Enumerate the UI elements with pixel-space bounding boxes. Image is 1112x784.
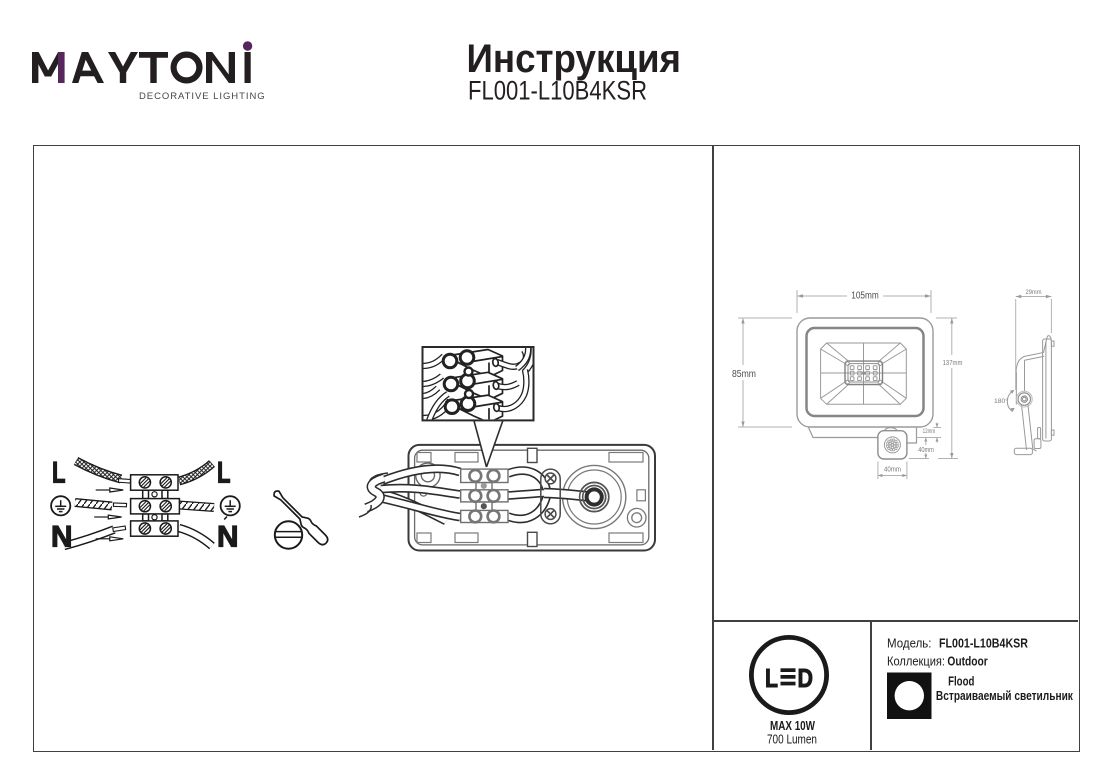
svg-text:Модель:: Модель: [887, 636, 932, 651]
svg-text:12mm: 12mm [923, 428, 936, 435]
svg-text:Коллекция:: Коллекция: [887, 654, 945, 669]
svg-text:105mm: 105mm [851, 291, 879, 302]
svg-text:N: N [217, 521, 239, 554]
svg-text:L: L [52, 457, 66, 490]
svg-text:FL001-L10B4KSR: FL001-L10B4KSR [468, 76, 647, 106]
svg-text:137mm: 137mm [943, 360, 963, 367]
svg-text:L: L [765, 663, 778, 693]
svg-text:Инструкция: Инструкция [467, 37, 682, 81]
svg-text:Flood: Flood [948, 673, 974, 688]
svg-text:29mm: 29mm [1026, 289, 1042, 296]
svg-text:FL001-L10B4KSR: FL001-L10B4KSR [939, 636, 1028, 651]
svg-text:N: N [51, 521, 73, 554]
svg-text:180°: 180° [994, 397, 1008, 405]
svg-text:DECORATIVE LIGHTING: DECORATIVE LIGHTING [139, 91, 266, 102]
svg-text:85mm: 85mm [732, 369, 756, 380]
svg-text:Встраиваемый светильник: Встраиваемый светильник [936, 688, 1073, 703]
svg-text:D: D [798, 663, 814, 693]
svg-text:L: L [217, 457, 231, 490]
svg-text:40mm: 40mm [918, 447, 934, 454]
svg-text:40mm: 40mm [884, 467, 901, 474]
svg-text:700 Lumen: 700 Lumen [767, 732, 817, 747]
svg-text:Outdoor: Outdoor [947, 654, 987, 669]
